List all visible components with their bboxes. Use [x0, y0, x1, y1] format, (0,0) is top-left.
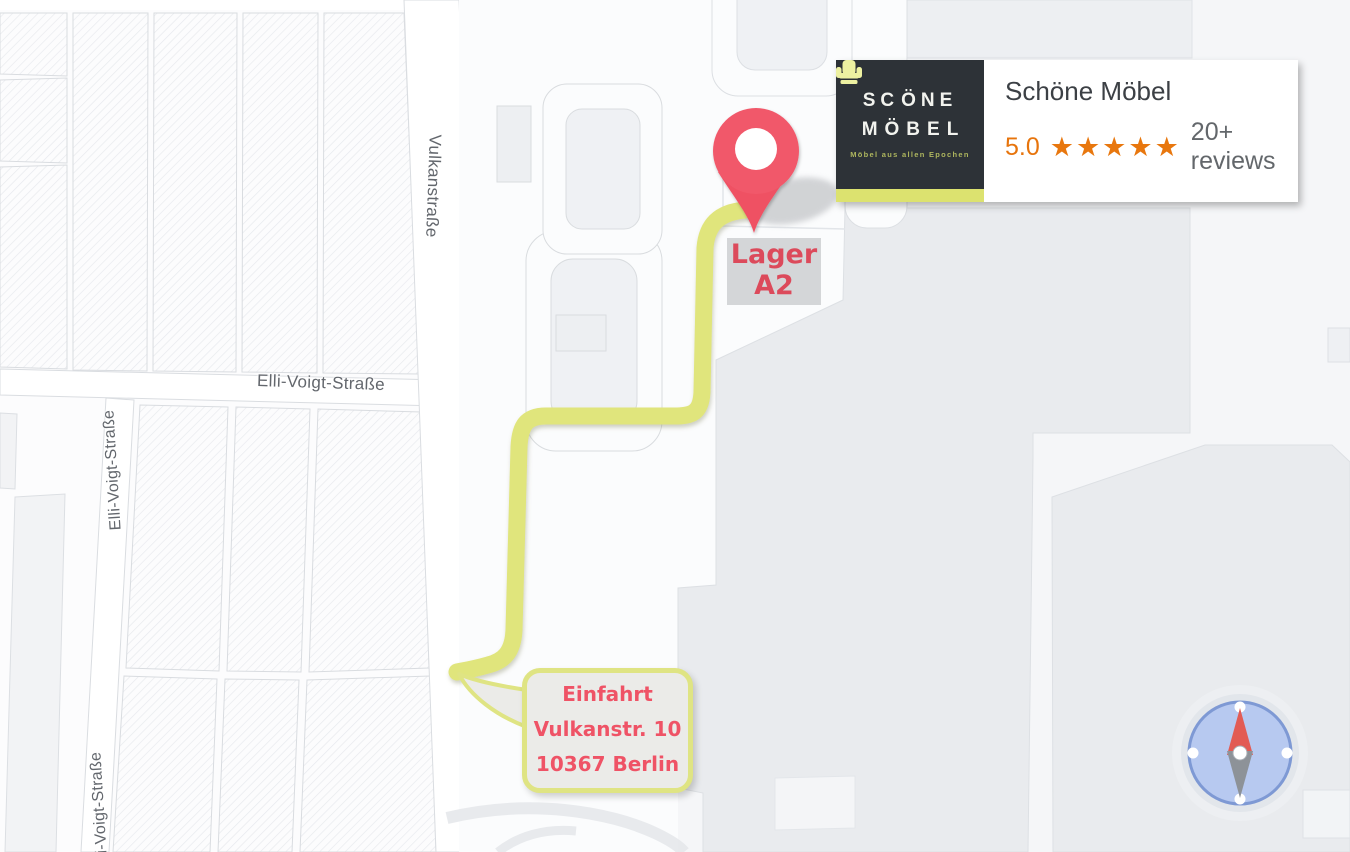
entrance-callout: Einfahrt Vulkanstr. 10 10367 Berlin	[522, 668, 693, 793]
warehouse-label: Lager A2	[727, 238, 821, 305]
entrance-callout-line2: Vulkanstr. 10	[527, 712, 688, 747]
platform-notch	[775, 776, 855, 830]
compass-icon[interactable]	[1172, 685, 1308, 821]
top-road	[0, 0, 462, 10]
map-viewport[interactable]: Vulkanstraße Elli-Voigt-Straße Elli-Voig…	[0, 0, 1350, 852]
business-title: Schöne Möbel	[1005, 76, 1298, 107]
street-label-elli-voigt-horizontal: Elli-Voigt-Straße	[257, 371, 385, 395]
parcels-lower-left	[113, 405, 436, 852]
warehouse-label-line1: Lager	[727, 239, 821, 270]
business-logo: SC ÖNE MÖBEL Möbel aus allen Epochen	[836, 60, 984, 202]
rating-value: 5.0	[1005, 133, 1040, 162]
entrance-callout-line1: Einfahrt	[527, 677, 688, 712]
street-label-vulkanstrasse: Vulkanstraße	[421, 134, 445, 238]
small-building-a	[497, 106, 531, 182]
compass-hub	[1233, 746, 1247, 760]
small-building-right-edge	[1328, 328, 1350, 362]
logo-word-part1: SC	[863, 90, 899, 112]
business-card: SC ÖNE MÖBEL Möbel aus allen Epochen	[836, 60, 1298, 202]
business-logo-main: SC ÖNE MÖBEL Möbel aus allen Epochen	[836, 60, 984, 189]
logo-accent-bar	[836, 189, 984, 202]
rating-stars-icon: ★★★★★	[1050, 134, 1181, 161]
business-card-body: Schöne Möbel 5.0 ★★★★★ 20+ reviews	[984, 60, 1298, 202]
armchair-icon	[836, 60, 862, 85]
drive-loop-a-inner	[566, 109, 640, 229]
parcels-upper-left	[0, 13, 419, 374]
warehouse-label-line2: A2	[727, 270, 821, 301]
logo-wordmark-line1: SC ÖNE	[863, 90, 958, 112]
rating-row: 5.0 ★★★★★ 20+ reviews	[1005, 118, 1298, 176]
logo-word-part2: ÖNE	[901, 90, 957, 112]
platform-top	[906, 0, 1192, 58]
small-building-b	[556, 315, 606, 351]
logo-tagline: Möbel aus allen Epochen	[850, 150, 970, 159]
drive-loop-top-inner	[737, 0, 827, 70]
entrance-callout-line3: 10367 Berlin	[527, 747, 688, 782]
small-building-bottom-right	[1303, 790, 1350, 838]
reviews-link[interactable]: 20+ reviews	[1191, 118, 1298, 176]
logo-wordmark-line2: MÖBEL	[855, 119, 966, 141]
